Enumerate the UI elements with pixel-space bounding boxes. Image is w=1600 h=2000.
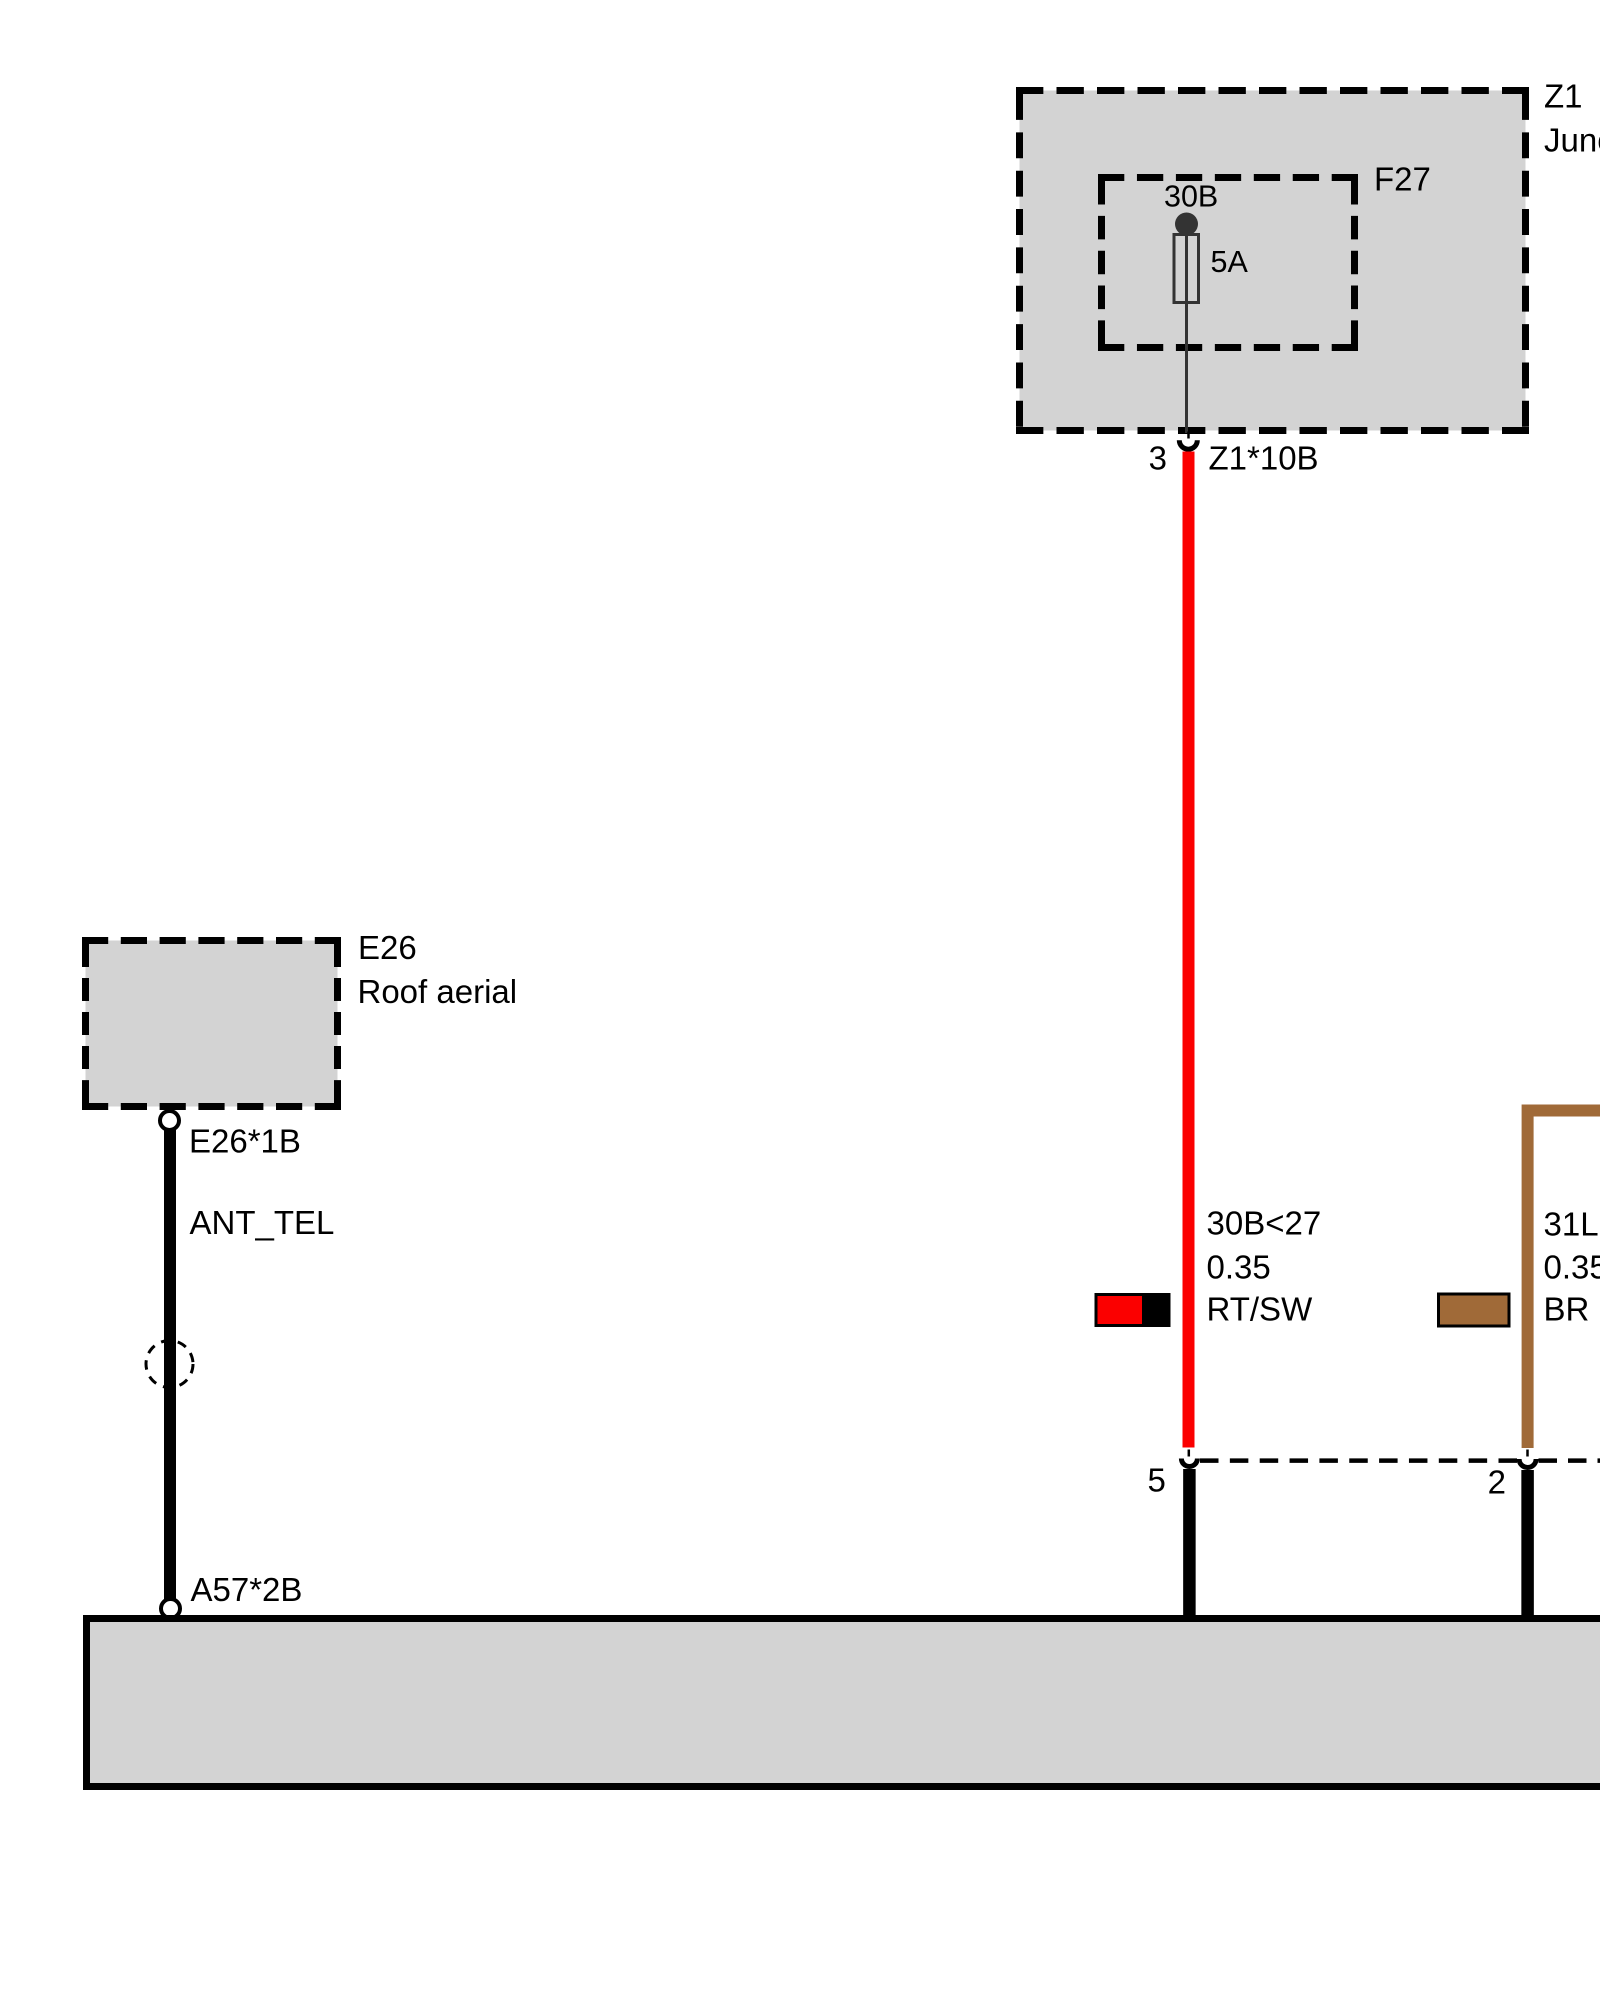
svg-text:5: 5	[1147, 1461, 1165, 1498]
svg-text:RT/SW: RT/SW	[1207, 1291, 1314, 1328]
svg-text:E26: E26	[358, 929, 417, 966]
svg-text:BR: BR	[1544, 1291, 1590, 1328]
svg-text:F27: F27	[1374, 161, 1431, 198]
svg-text:30B<27: 30B<27	[1207, 1205, 1322, 1242]
svg-text:Z1*10B: Z1*10B	[1209, 440, 1319, 477]
svg-text:0.35: 0.35	[1544, 1249, 1600, 1286]
svg-text:ANT_TEL: ANT_TEL	[190, 1204, 335, 1241]
svg-text:0.35: 0.35	[1207, 1249, 1271, 1286]
svg-text:Z1: Z1	[1544, 78, 1583, 115]
svg-text:30B: 30B	[1164, 180, 1218, 214]
svg-text:3: 3	[1149, 440, 1167, 477]
svg-text:2: 2	[1488, 1464, 1506, 1501]
svg-text:Junction box: Junction box	[1544, 122, 1600, 159]
svg-text:E26*1B: E26*1B	[189, 1123, 301, 1160]
svg-text:A57*2B: A57*2B	[191, 1571, 303, 1608]
svg-text:Roof aerial: Roof aerial	[358, 973, 518, 1010]
svg-text:5A: 5A	[1211, 245, 1249, 279]
svg-text:31L<27: 31L<27	[1544, 1206, 1600, 1243]
